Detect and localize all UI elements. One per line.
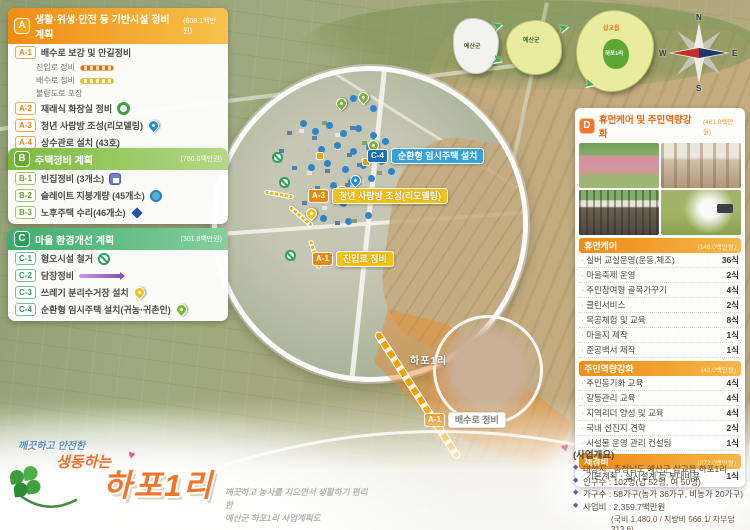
empty-house-icon [109, 173, 121, 185]
prohibition-icon [98, 253, 110, 265]
callout-c4-temp-housing: C-4 순환형 임시주택 설치 [367, 148, 484, 164]
item-c4: C-4 순환형 임시주택 설치(귀농·귀촌인) [8, 301, 228, 321]
item-a2: A-2 재래식 화장실 정비 [8, 100, 228, 117]
panel-a-badge: A [14, 18, 30, 34]
d-row: 주민참여형 골목가꾸기4식 [579, 283, 741, 298]
overview-row: 인구수 : 102명(남 52명, 여 50명) [573, 476, 747, 489]
logo-village-name: 하포1리 [103, 460, 214, 505]
panel-d-title: 휴먼케어 및 주민역량강화 [599, 112, 699, 140]
item-code-chip: C-1 [15, 252, 36, 265]
demolition-marker [279, 177, 290, 188]
truck-shape [717, 204, 733, 213]
panel-c-header: C 마을 환경개선 계획 (301.8백만원) [8, 228, 228, 250]
item-b2: B-2 슬레이트 지붕개량 (45개소) [8, 187, 228, 204]
callout-label: 진입로 정비 [336, 251, 394, 267]
callout-label: 순환형 임시주택 설치 [391, 148, 485, 164]
fence-line-icon [79, 274, 121, 278]
compass-rose-icon: N E S W [668, 22, 730, 84]
d-row: 마을지 제작1식 [579, 328, 741, 343]
locator-map-county: 예산군 [506, 20, 562, 75]
section-human-care-header: 휴먼케어 (146.0백만원) [579, 238, 741, 253]
cctv-marker [316, 152, 324, 160]
village-logo: 깨끗하고 안전한 생동하는 ♥ 하포1리 깨끗하고 농사를 지으면서 생활하기 … [0, 428, 370, 528]
subitem-bad-road: 불량도로 포장 [8, 87, 228, 100]
old-house-repair-icon [131, 207, 142, 218]
village-plan-poster: C-4 순환형 임시주택 설치 A-3 청년 사랑방 조성(리모델링) A-1 … [0, 0, 750, 530]
photo-village-group [579, 143, 659, 188]
d-row: 마을축제 운영2식 [579, 268, 741, 283]
overview-row: 가구수 : 58가구(농가 36가구, 비농가 20가구) [573, 488, 747, 501]
panel-b-title: 주택정비 계획 [35, 152, 93, 167]
compass-needle-east [699, 48, 726, 58]
item-code-chip: A-2 [15, 102, 36, 115]
demolition-marker [272, 152, 283, 163]
green-pin-icon [174, 302, 190, 318]
panel-b-amount: (780.0백만원) [181, 154, 223, 164]
overview-row: 대상지 : 충청남도 예산군 삽교읍 하포1리 [573, 463, 747, 476]
logo-subtitle: 깨끗하고 농사를 지으면서 생활하기 편리한 예산군 하포1리 사업계획도 [225, 486, 375, 524]
project-overview: ♥ (사업개요) 대상지 : 충청남도 예산군 삽교읍 하포1리 인구수 : 1… [573, 447, 747, 530]
hatched-line-yellow-icon [80, 78, 114, 84]
panel-a-title: 생활·위생·안전 등 기반시설 정비계획 [35, 11, 178, 41]
d-row: 갈등관리 교육4식 [579, 391, 741, 406]
item-b3: B-3 노후주택 수리(46개소) [8, 204, 228, 224]
subitem-entry-road: 진입로 정비 [8, 61, 228, 74]
blue-pin-icon [146, 118, 162, 134]
locator-label: 삽교읍 [603, 23, 620, 32]
item-a1: A-1 배수로 보강 및 안길정비 [8, 44, 228, 61]
d-row: 목공체험 및 교육8식 [579, 313, 741, 328]
callout-a1-entry-road: A-1 진입로 정비 [312, 251, 394, 267]
d-row: 준공백서 제작1식 [579, 343, 741, 358]
callout-code-badge: A-1 [312, 252, 333, 266]
item-code-chip: C-2 [15, 269, 36, 282]
panel-human-care: D 휴먼케어 및 주민역량강화 (461.0백만원) 휴먼케어 (146.0백만… [575, 108, 745, 487]
panel-a-amount: (608.1백만원) [183, 16, 222, 36]
logo-tagline-small: 깨끗하고 안전한 [18, 437, 85, 452]
d-row: 실버 교실운영(운동,체조)36식 [579, 253, 741, 268]
hatched-line-orange-icon [80, 65, 114, 71]
d-row: 주민동기화 교육4식 [579, 376, 741, 391]
panel-c-amount: (301.8백만원) [181, 234, 223, 244]
locator-label: 예산군 [464, 41, 481, 50]
callout-code-badge: C-4 [367, 149, 388, 163]
panel-b-header: B 주택정비 계획 (780.0백만원) [8, 148, 228, 170]
locator-highlight-label: 하포1리 [605, 49, 623, 57]
panel-d-badge: D [579, 118, 595, 134]
item-code-chip: A-1 [15, 46, 36, 59]
item-a3: A-3 청년 사랑방 조성(리모델링) [8, 117, 228, 134]
item-c3: C-3 쓰레기 분리수거장 설치 [8, 284, 228, 301]
panel-b-badge: B [14, 151, 30, 167]
callout-code-badge: A-3 [308, 189, 329, 203]
demolition-marker [285, 250, 296, 261]
yellow-pin-icon [131, 285, 147, 301]
item-c2: C-2 담장정비 [8, 267, 228, 284]
panel-c-title: 마을 환경개선 계획 [35, 232, 114, 247]
item-code-chip: A-3 [15, 119, 36, 132]
photo-exercise-class [661, 143, 741, 188]
item-code-chip: C-4 [15, 303, 36, 316]
map-village-name-label: 하포1리 [410, 352, 447, 367]
panel-c-badge: C [14, 231, 30, 247]
locator-highlight-region: 하포1리 [603, 39, 629, 69]
d-row: 지역리더 양성 및 교육4식 [579, 406, 741, 421]
item-code-chip: B-3 [15, 206, 36, 219]
panel-a-header: A 생활·위생·안전 등 기반시설 정비계획 (608.1백만원) [8, 8, 228, 44]
item-code-chip: B-1 [15, 172, 36, 185]
locator-label: 예산군 [523, 35, 540, 44]
compass-needle-west [672, 48, 699, 58]
photo-grid [579, 143, 741, 235]
roof-improvement-markers [300, 120, 307, 127]
item-code-chip: C-3 [15, 286, 36, 299]
panel-housing-plan: B 주택정비 계획 (780.0백만원) B-1 빈집정비 (3개소) B-2 … [8, 148, 228, 224]
overview-title: ♥ (사업개요) [573, 447, 747, 461]
section-capacity-header: 주민역량강화 (43.0백만원) [579, 361, 741, 376]
photo-field-spraying [661, 190, 741, 235]
callout-a3-youth-room: A-3 청년 사랑방 조성(리모델링) [308, 188, 448, 204]
overview-row: 사업비 : 2,359.7백만원 [573, 501, 747, 514]
panel-d-amount: (461.0백만원) [703, 116, 741, 136]
overview-cost-detail: (국비 1,480.0 / 지방비 566.1/ 자부담 313.6) [573, 514, 747, 530]
green-ring-icon [117, 102, 130, 115]
item-b1: B-1 빈집정비 (3개소) [8, 170, 228, 187]
d-row: 국내 선진지 견학2식 [579, 421, 741, 436]
panel-environment-plan: C 마을 환경개선 계획 (301.8백만원) C-1 혐오시설 철거 C-2 … [8, 228, 228, 321]
item-c1: C-1 혐오시설 철거 [8, 250, 228, 267]
item-code-chip: B-2 [15, 189, 36, 202]
callout-label: 청년 사랑방 조성(리모델링) [332, 188, 448, 204]
panel-infrastructure-plan: A 생활·위생·안전 등 기반시설 정비계획 (608.1백만원) A-1 배수… [8, 8, 228, 171]
d-row: 클린서비스2식 [579, 298, 741, 313]
panel-d-header: D 휴먼케어 및 주민역량강화 (461.0백만원) [579, 112, 741, 140]
photo-festival-crowd [579, 190, 659, 235]
roof-improvement-icon [150, 190, 162, 202]
subitem-drainage: 배수로 정비 [8, 74, 228, 87]
